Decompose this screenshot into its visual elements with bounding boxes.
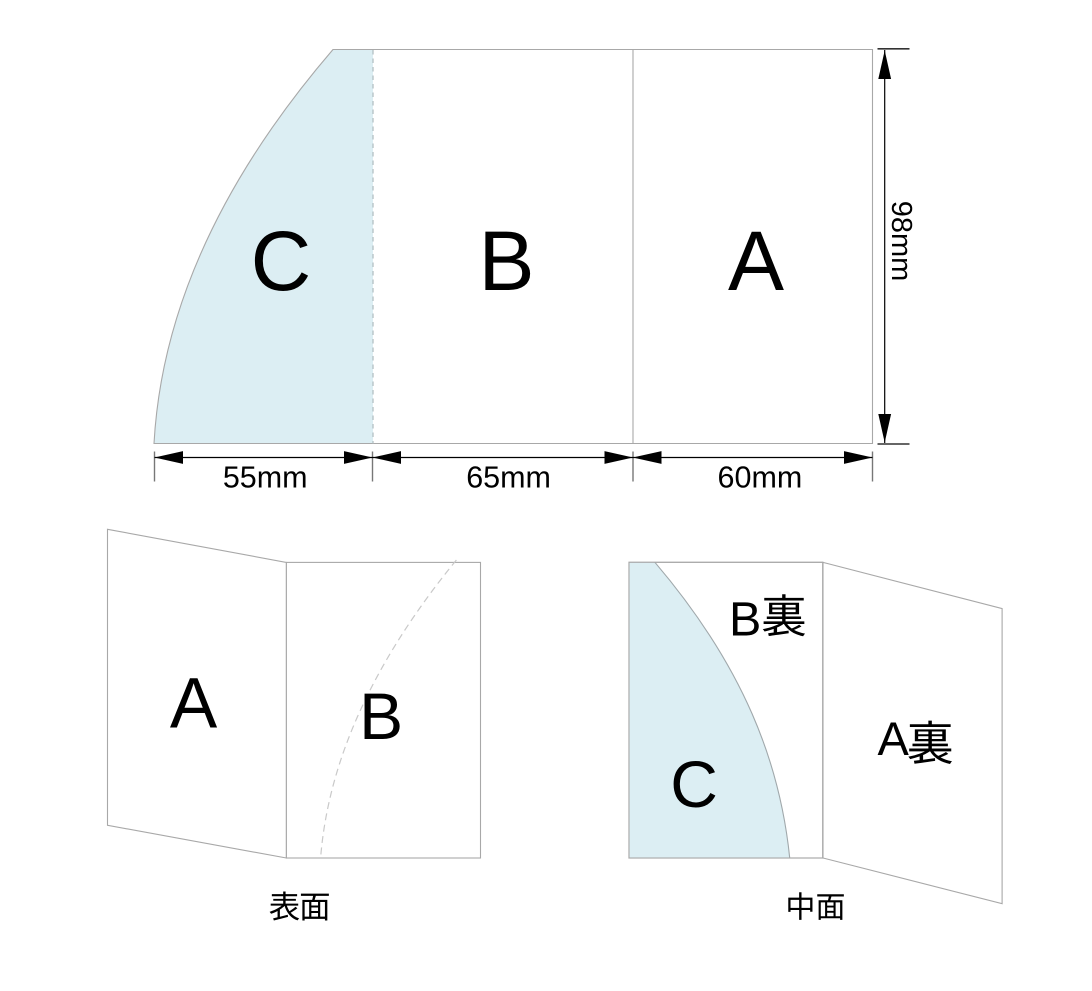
svg-text:98mm: 98mm <box>885 201 917 282</box>
svg-text:B: B <box>729 592 761 646</box>
svg-text:C: C <box>251 214 312 308</box>
svg-text:65mm: 65mm <box>466 460 551 494</box>
svg-text:B: B <box>359 679 403 753</box>
svg-text:B: B <box>478 214 534 308</box>
svg-text:A: A <box>170 665 218 744</box>
svg-text:55mm: 55mm <box>223 460 308 494</box>
svg-text:60mm: 60mm <box>718 460 803 494</box>
svg-text:A: A <box>878 712 910 765</box>
svg-text:C: C <box>670 747 718 821</box>
svg-text:A: A <box>728 214 784 308</box>
